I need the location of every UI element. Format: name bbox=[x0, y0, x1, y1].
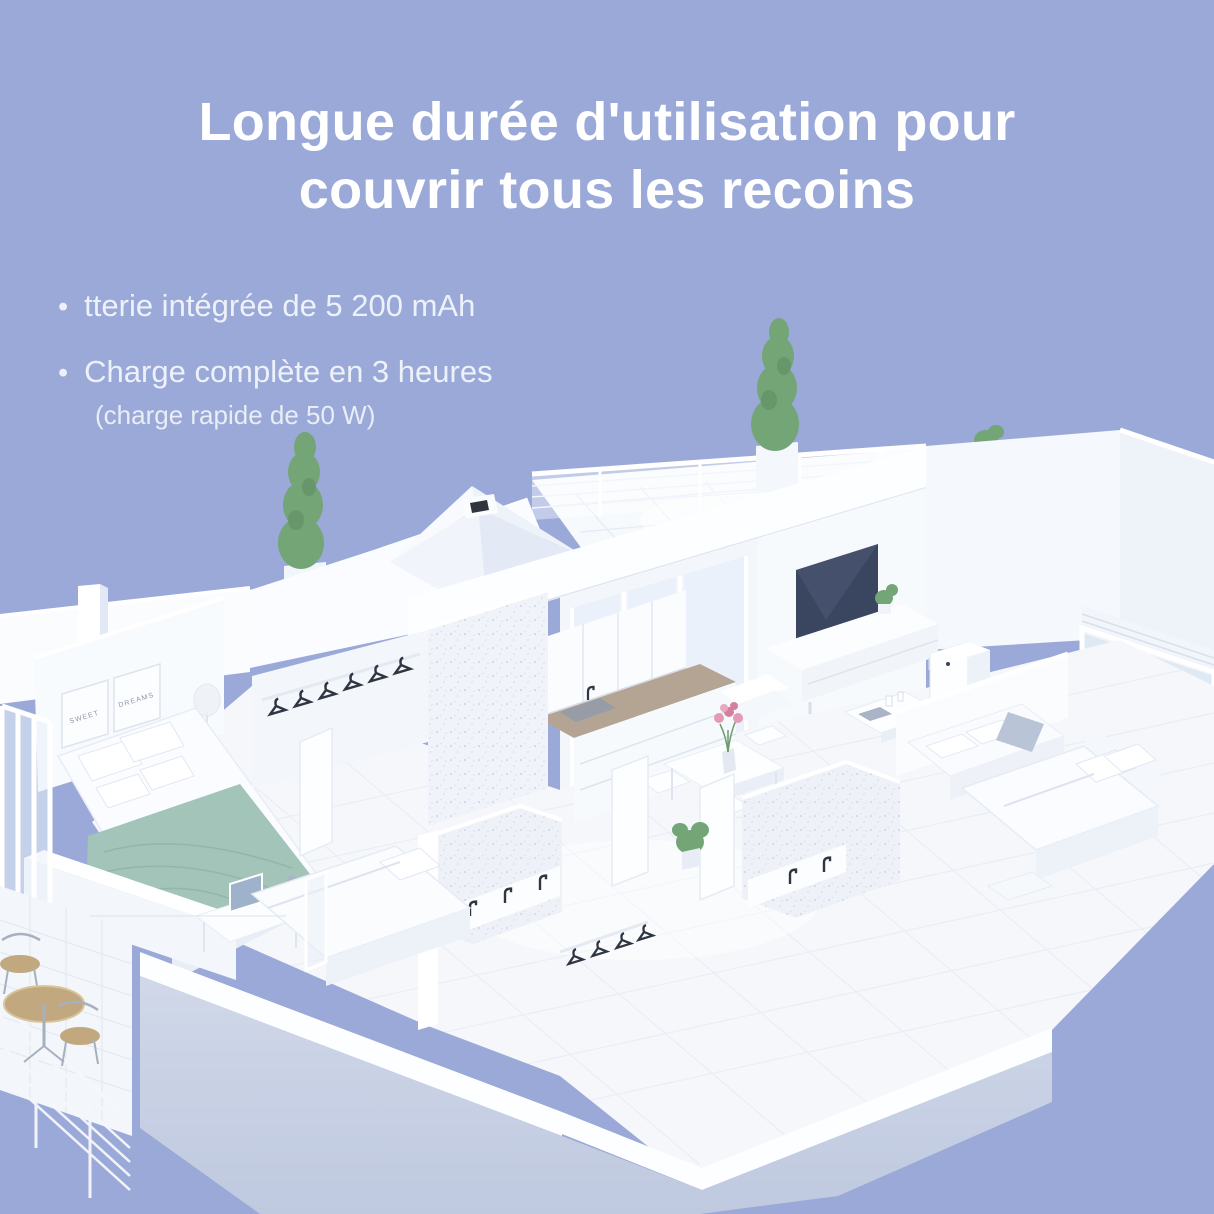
bullet-icon: • bbox=[58, 293, 68, 322]
headline-line-1: Longue durée d'utilisation pour bbox=[0, 88, 1214, 156]
headline-line-2: couvrir tous les recoins bbox=[0, 156, 1214, 224]
feature-charge-subtext: (charge rapide de 50 W) bbox=[95, 400, 493, 431]
open-door bbox=[612, 756, 648, 886]
closet-door bbox=[300, 728, 332, 856]
bullet-icon: • bbox=[58, 359, 68, 388]
feature-charge: • Charge complète en 3 heures bbox=[58, 354, 493, 390]
headline: Longue durée d'utilisation pour couvrir … bbox=[0, 88, 1214, 224]
product-infographic: SWEET DREAMS bbox=[0, 0, 1214, 1214]
feature-battery: • tterie intégrée de 5 200 mAh bbox=[58, 288, 493, 324]
feature-list: • tterie intégrée de 5 200 mAh • Charge … bbox=[58, 288, 493, 431]
feature-battery-text: tterie intégrée de 5 200 mAh bbox=[84, 288, 475, 324]
open-door bbox=[700, 774, 734, 900]
feature-charge-text: Charge complète en 3 heures bbox=[84, 354, 492, 390]
terrazzo-wall bbox=[428, 590, 548, 826]
glass-partition bbox=[306, 872, 326, 970]
